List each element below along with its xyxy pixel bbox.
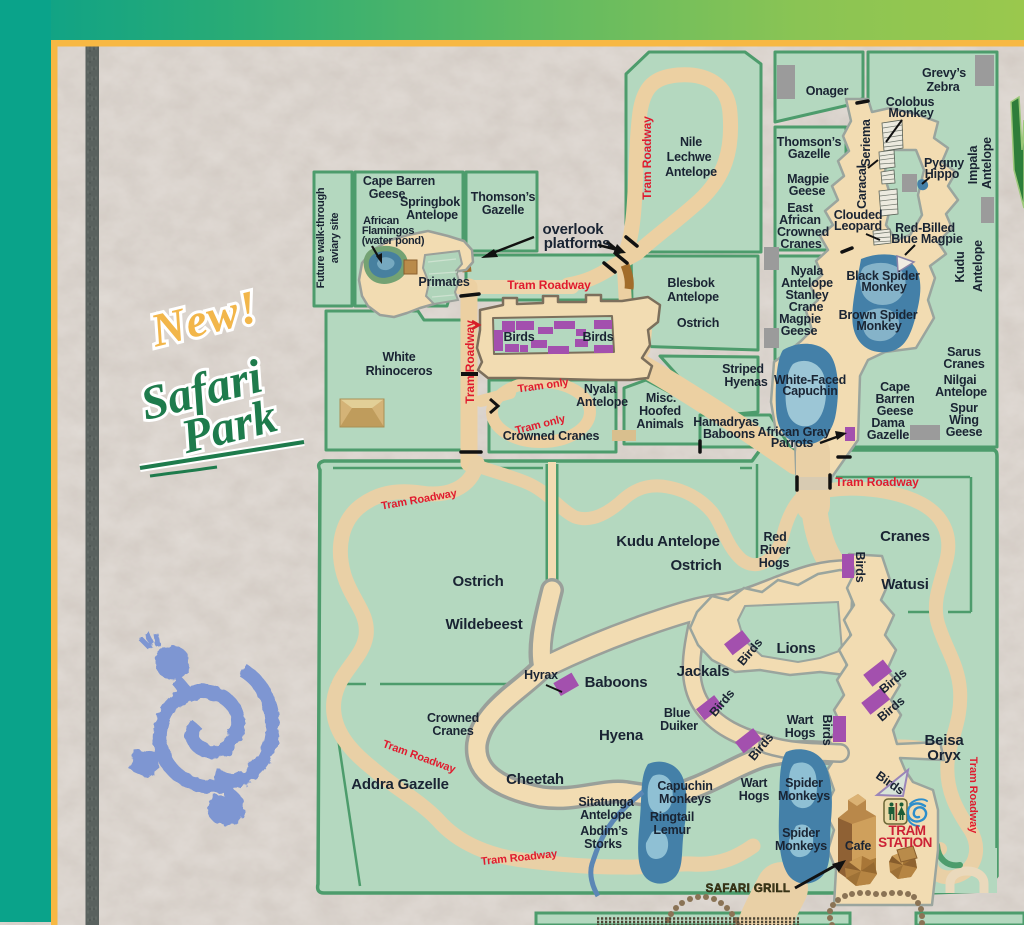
svg-text:Spider: Spider — [782, 826, 820, 840]
svg-text:Hyrax: Hyrax — [524, 668, 558, 682]
svg-text:Cape Barren: Cape Barren — [363, 174, 435, 188]
svg-text:Sitatunga: Sitatunga — [578, 795, 634, 809]
svg-text:platforms: platforms — [544, 235, 611, 252]
svg-text:Cafe: Cafe — [845, 839, 872, 853]
svg-text:Animals: Animals — [636, 417, 683, 431]
svg-text:Misc.: Misc. — [646, 391, 676, 405]
svg-text:Seriema: Seriema — [859, 118, 873, 166]
svg-text:Red: Red — [763, 530, 786, 544]
svg-text:Wart: Wart — [741, 776, 769, 790]
svg-text:Blesbok: Blesbok — [667, 276, 714, 290]
svg-text:Antelope: Antelope — [665, 165, 717, 179]
svg-text:Zebra: Zebra — [926, 80, 960, 94]
svg-text:Lemur: Lemur — [653, 823, 691, 837]
svg-text:Tram Roadway: Tram Roadway — [640, 116, 654, 200]
svg-text:STATION: STATION — [878, 835, 932, 850]
svg-text:Lechwe: Lechwe — [667, 150, 712, 164]
svg-text:Birds: Birds — [504, 330, 535, 344]
svg-text:Baboons: Baboons — [703, 427, 755, 441]
svg-text:Gazelle: Gazelle — [482, 203, 525, 217]
svg-text:Antelope: Antelope — [576, 395, 628, 409]
svg-text:Caracal: Caracal — [855, 165, 869, 209]
svg-text:Wildebeest: Wildebeest — [445, 616, 522, 633]
svg-text:Hyenas: Hyenas — [724, 375, 768, 389]
svg-text:River: River — [760, 543, 791, 557]
svg-text:Antelope: Antelope — [971, 240, 985, 292]
svg-text:Impala: Impala — [966, 145, 980, 185]
svg-text:Baboons: Baboons — [585, 674, 648, 691]
svg-text:Blue Magpie: Blue Magpie — [891, 232, 963, 246]
svg-text:Birds: Birds — [853, 552, 867, 583]
svg-text:Birds: Birds — [583, 330, 614, 344]
svg-text:Tram Roadway: Tram Roadway — [463, 320, 477, 404]
svg-text:Future walk-through: Future walk-through — [315, 187, 327, 288]
svg-text:Hyena: Hyena — [599, 727, 644, 744]
svg-text:Cranes: Cranes — [943, 357, 984, 371]
svg-text:White: White — [382, 350, 415, 364]
svg-text:Rhinoceros: Rhinoceros — [366, 364, 433, 378]
svg-text:Hippo: Hippo — [925, 167, 960, 181]
svg-text:Lions: Lions — [777, 640, 816, 657]
svg-text:Geese: Geese — [789, 184, 826, 198]
svg-text:Crowned Cranes: Crowned Cranes — [503, 429, 600, 443]
svg-text:Grevy’s: Grevy’s — [922, 66, 966, 80]
svg-text:Nile: Nile — [680, 135, 702, 149]
svg-text:Ostrich: Ostrich — [670, 557, 721, 574]
svg-text:Wart: Wart — [787, 713, 815, 727]
svg-text:Ringtail: Ringtail — [650, 810, 694, 824]
svg-text:Striped: Striped — [722, 362, 764, 376]
svg-text:Nyala: Nyala — [584, 382, 618, 396]
svg-text:Gazelle: Gazelle — [788, 147, 831, 161]
svg-text:Monkeys: Monkeys — [659, 792, 711, 806]
svg-text:Cranes: Cranes — [780, 237, 821, 251]
svg-text:Primates: Primates — [418, 275, 469, 289]
svg-text:Capuchin: Capuchin — [782, 384, 837, 398]
svg-text:Antelope: Antelope — [406, 208, 458, 222]
svg-text:Kudu: Kudu — [953, 251, 967, 282]
svg-text:Cranes: Cranes — [880, 528, 930, 545]
svg-text:Monkeys: Monkeys — [778, 789, 830, 803]
svg-text:Geese: Geese — [781, 324, 818, 338]
svg-text:Birds: Birds — [820, 715, 834, 746]
svg-text:Geese: Geese — [946, 425, 983, 439]
svg-text:Blue: Blue — [664, 706, 691, 720]
svg-text:Thomson’s: Thomson’s — [471, 190, 536, 204]
svg-text:Spider: Spider — [785, 776, 823, 790]
svg-text:Monkey: Monkey — [861, 280, 907, 294]
svg-text:Antelope: Antelope — [980, 137, 994, 189]
svg-text:Cheetah: Cheetah — [506, 771, 564, 788]
svg-text:Parrots: Parrots — [771, 436, 814, 450]
svg-text:Abdim’s: Abdim’s — [580, 824, 628, 838]
svg-text:Monkeys: Monkeys — [775, 839, 827, 853]
svg-text:Cranes: Cranes — [432, 724, 473, 738]
svg-text:Tram Roadway: Tram Roadway — [967, 757, 979, 834]
svg-text:aviary site: aviary site — [329, 213, 341, 264]
svg-text:Addra Gazelle: Addra Gazelle — [351, 776, 448, 793]
svg-text:Antelope: Antelope — [580, 808, 632, 822]
svg-text:Gazelle: Gazelle — [867, 428, 910, 442]
svg-text:Storks: Storks — [584, 837, 622, 851]
svg-text:SAFARI GRILL: SAFARI GRILL — [706, 883, 791, 895]
svg-text:Antelope: Antelope — [667, 290, 719, 304]
svg-text:Tram Roadway: Tram Roadway — [507, 278, 591, 292]
svg-text:Duiker: Duiker — [660, 719, 698, 733]
svg-text:Hogs: Hogs — [785, 726, 816, 740]
svg-text:(water pond): (water pond) — [362, 235, 425, 247]
svg-text:Leopard: Leopard — [834, 219, 882, 233]
svg-text:Onager: Onager — [806, 84, 849, 98]
svg-text:Crowned: Crowned — [427, 711, 479, 725]
svg-text:Ostrich: Ostrich — [452, 573, 503, 590]
svg-text:Hogs: Hogs — [759, 556, 790, 570]
svg-text:Watusi: Watusi — [881, 576, 928, 593]
svg-text:Tram Roadway: Tram Roadway — [835, 475, 919, 489]
svg-text:Jackals: Jackals — [677, 663, 730, 680]
svg-text:Springbok: Springbok — [400, 195, 460, 209]
svg-text:Antelope: Antelope — [935, 385, 987, 399]
svg-text:Capuchin: Capuchin — [657, 779, 712, 793]
svg-text:Oryx: Oryx — [927, 747, 961, 764]
svg-text:Monkey: Monkey — [888, 106, 934, 120]
svg-text:Ostrich: Ostrich — [677, 316, 719, 330]
svg-text:Kudu Antelope: Kudu Antelope — [616, 533, 720, 550]
svg-text:Hoofed: Hoofed — [639, 404, 681, 418]
svg-text:Monkey: Monkey — [856, 319, 902, 333]
svg-text:Hogs: Hogs — [739, 789, 770, 803]
